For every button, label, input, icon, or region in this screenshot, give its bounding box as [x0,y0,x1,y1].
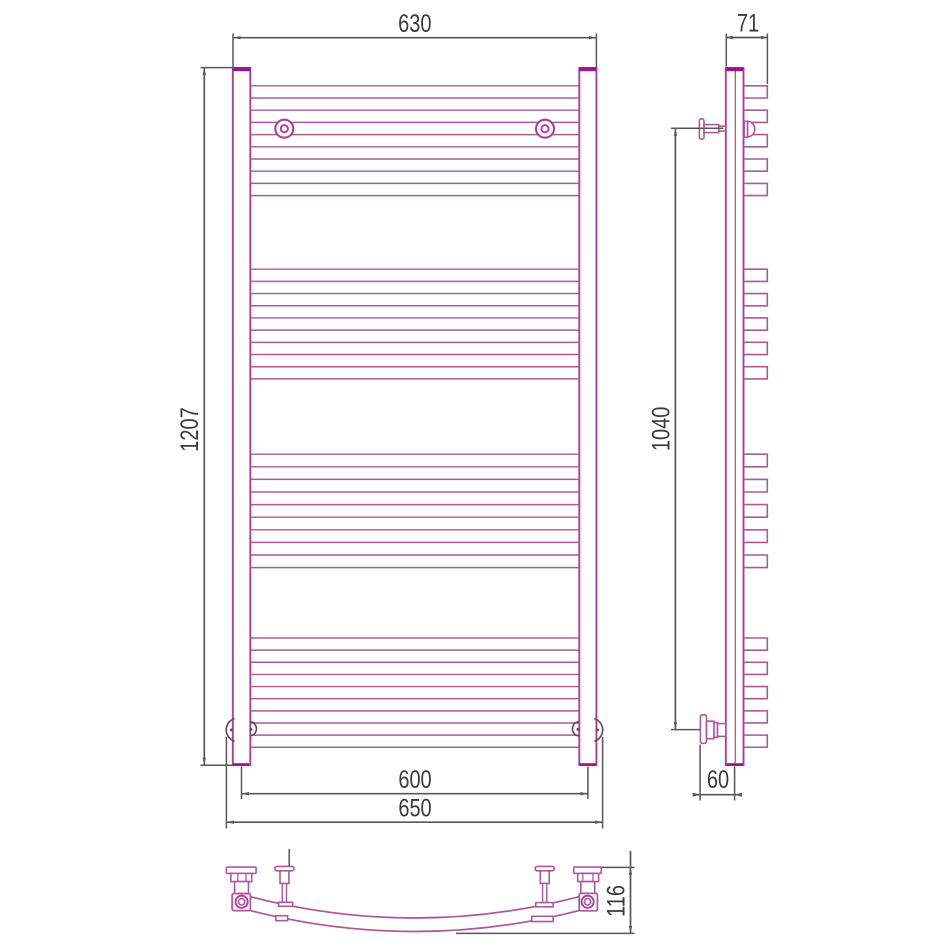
svg-text:116: 116 [602,885,630,917]
svg-text:650: 650 [398,795,431,823]
svg-text:71: 71 [737,9,759,37]
svg-text:1207: 1207 [176,407,204,451]
svg-text:1040: 1040 [648,407,676,451]
svg-text:630: 630 [398,10,431,38]
svg-text:600: 600 [398,766,431,794]
svg-text:60: 60 [707,766,729,794]
